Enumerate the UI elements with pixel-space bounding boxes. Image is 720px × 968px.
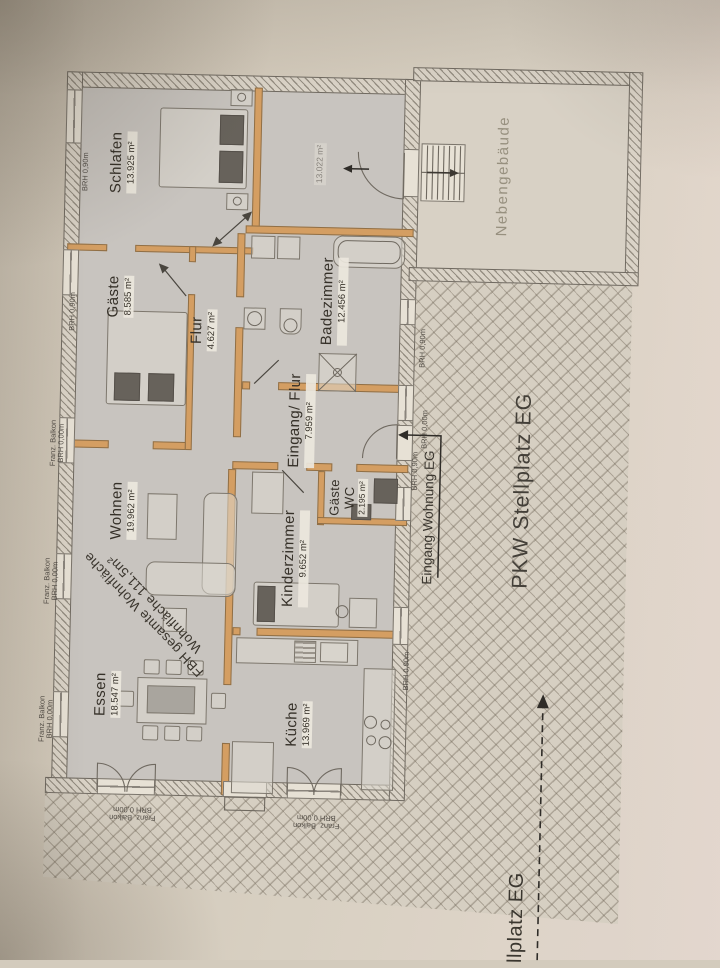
room-label-badezimmer: Badezimmer 12.456 m² [319,257,349,346]
eingang-wohnung-label: Eingang Wohnung EG [419,450,437,584]
label-line: BRH 0,90m [68,292,77,331]
room-area-label: 13.969 m² [301,701,313,748]
room-name-label: Schlafen [108,131,126,193]
label-line: BRH 0,90m [402,652,411,691]
room-area-label: 19.962 m² [126,482,138,540]
room-name-label: Gäste [105,275,123,317]
right-edge-label-4: BRH 0,90m [402,652,411,691]
floor-plan-sheet: Schlafen 13.925 m² Gäste 8.585 m² Flur 4… [0,0,720,968]
room-area-label: 7.959 m² [304,374,317,469]
nebengebaeude-label: Nebengebäude [494,116,514,237]
room-area-label: 8.585 m² [123,276,135,318]
room-label-gaeste: Gäste 8.585 m² [105,275,134,318]
label-line: PKW Stellplatz EG [508,392,537,589]
left-edge-label-3: Franz. Balkon BRH 0,00m [49,420,67,467]
left-edge-label-1: BRH 0,90m [81,152,90,191]
room-area-label: 13.925 m² [126,132,138,194]
room-area-label: 18.547 m² [110,671,122,718]
left-edge-label-2: BRH 0,90m [68,292,77,331]
label-line: Nebengebäude [494,116,514,237]
left-edge-label-5: Franz. Balkon BRH 0,00m [38,696,56,743]
floor-plan-photo: Schlafen 13.925 m² Gäste 8.585 m² Flur 4… [0,0,720,960]
abstellraum-arrow [343,165,369,174]
bottom-edge-label-1: Franz. Balkon BRH 0,00m [109,804,156,822]
room-label-wohnen: Wohnen 19.962 m² [108,481,138,540]
pkw-stellplatz-label: PKW Stellplatz EG [508,392,537,589]
label-line: BRH 0,00m [46,696,55,742]
room-area-label: 12.456 m² [337,257,350,345]
room-name-label: Badezimmer [319,257,338,346]
room-label-flur: Flur 4.627 m² [189,309,218,351]
label-line: BRH 0,00m [51,558,60,604]
room-name-label: Wohnen [108,481,126,539]
stellplatz-eg-label: llplatz EG [504,872,528,963]
right-edge-label-2: BRH 0,00m [421,410,430,449]
room-area-label: 2.195 m² [357,479,367,517]
label-line: BRH 0,00m [293,812,339,821]
room-label-essen: Essen 18.547 m² [92,671,121,718]
label-line: BRH 0,00m [57,420,66,466]
room-name-label2: WC [342,479,357,517]
room-label-gaeste-wc: Gäste WC 2.195 m² [327,479,367,517]
label-line: BRH 0,90m [418,329,427,368]
bottom-edge-label-2: Franz. Balkon BRH 0,00m [293,812,340,830]
label-line: BRH 0,00m [109,804,155,813]
right-edge-label-1: BRH 0,90m [418,329,427,368]
room-name-label: Kinderzimmer [280,510,299,608]
label-line: BRH 0,90m [81,152,90,191]
stellplatz-dashed-arrow [531,694,549,960]
room-label-schlafen: Schlafen 13.925 m² [108,131,138,193]
room-name-label: Eingang/ Flur [286,373,305,468]
label-line: BRH 0,90m [411,452,420,491]
left-edge-label-4: Franz. Balkon BRH 0,00m [43,558,61,605]
room-area-label: 9.652 m² [298,510,311,608]
room-area-label: 4.627 m² [206,310,218,352]
right-edge-label-3: BRH 0,90m [411,452,420,491]
room-area-faint: 13.022 m² [314,143,326,186]
room-label-eingang-flur: Eingang/ Flur 7.959 m² [286,373,317,468]
label-line: llplatz EG [504,872,528,963]
room-name-label: Flur [189,309,207,351]
room-name-label: Gäste [327,479,342,517]
room-area-label: 13.022 m² [314,143,326,186]
room-name-label: Essen [92,671,110,718]
room-label-kueche: Küche 13.969 m² [284,701,313,748]
label-line: Eingang Wohnung EG [419,450,437,584]
label-line: BRH 0,00m [421,410,430,449]
room-name-label: Küche [284,701,302,748]
room-label-kinderzimmer: Kinderzimmer 9.652 m² [280,510,311,608]
